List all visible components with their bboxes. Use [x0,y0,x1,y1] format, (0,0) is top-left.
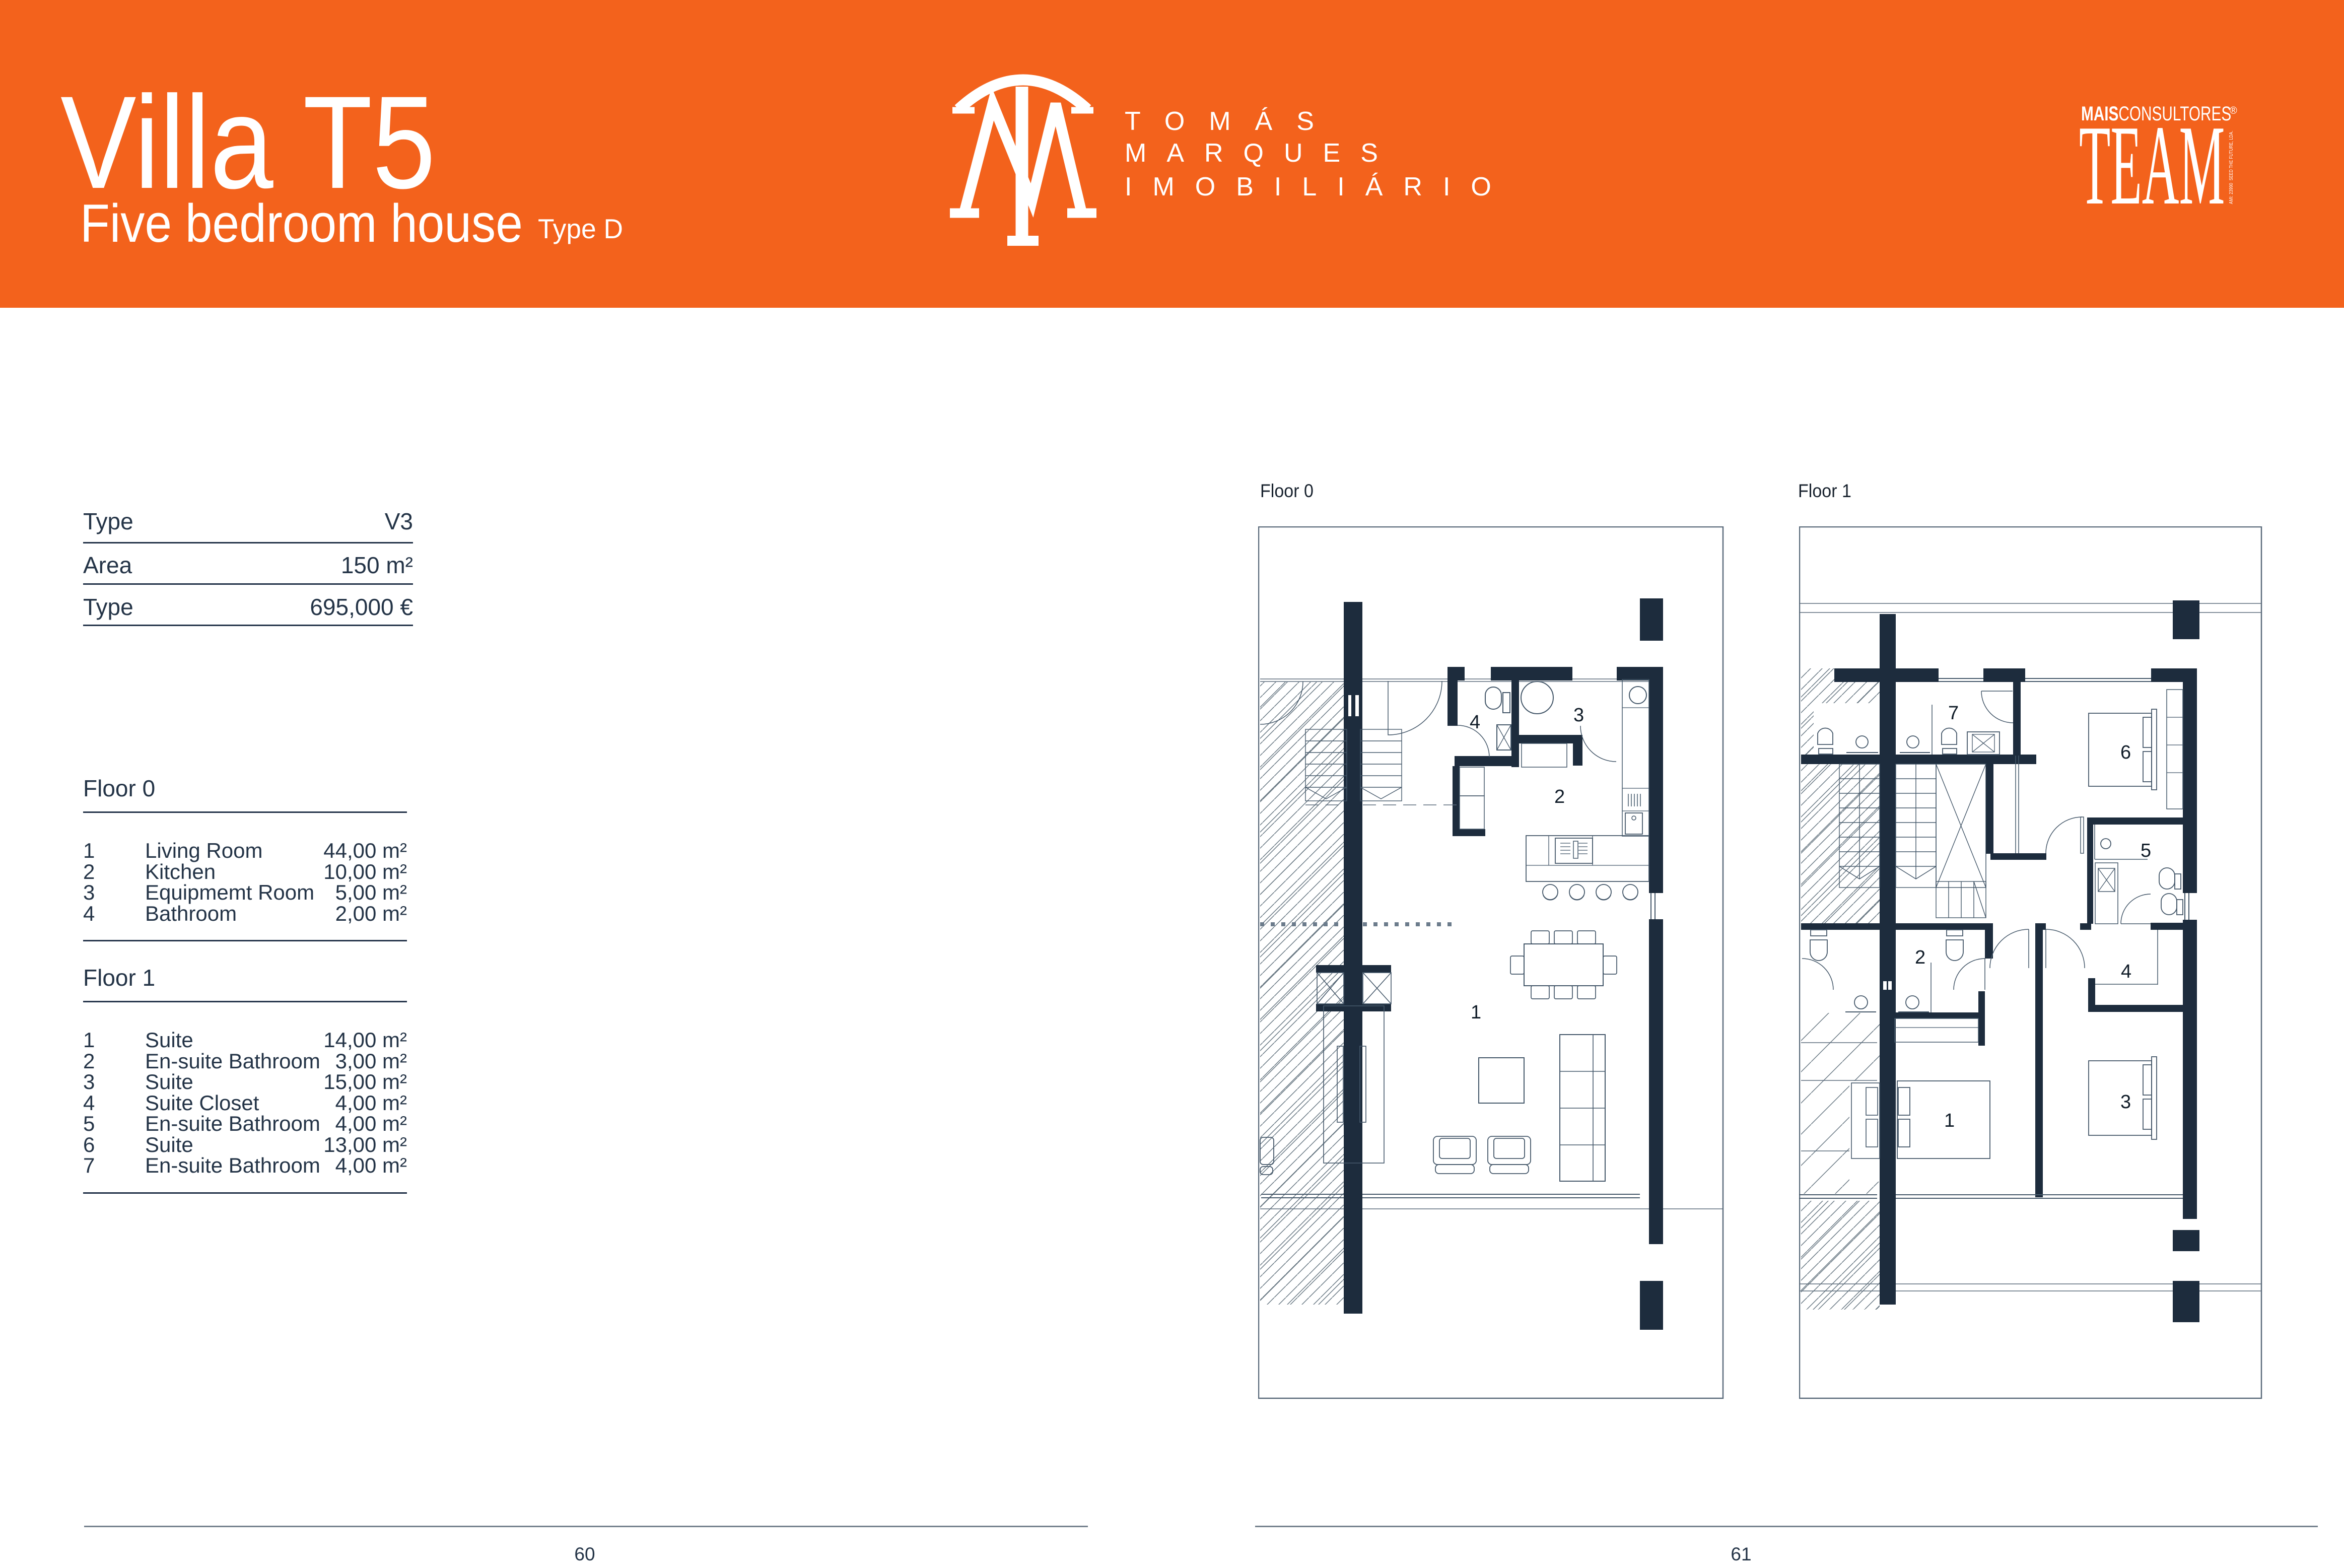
svg-text:6: 6 [2120,742,2131,763]
svg-text:1: 1 [1944,1110,1955,1131]
svg-text:4: 4 [1470,712,1480,733]
svg-text:3: 3 [2120,1092,2131,1113]
svg-text:2: 2 [1915,947,1925,968]
svg-text:5: 5 [2141,840,2151,861]
svg-text:2: 2 [1554,786,1565,807]
svg-text:4: 4 [2121,961,2131,982]
svg-text:7: 7 [1948,703,1959,724]
svg-text:1: 1 [1471,1002,1481,1023]
svg-text:3: 3 [1573,705,1584,726]
